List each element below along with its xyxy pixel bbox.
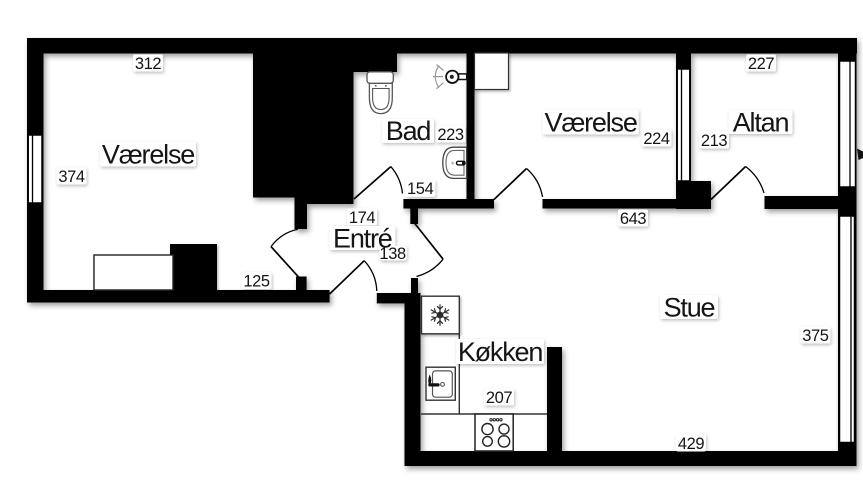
svg-text:Stue: Stue [664, 293, 715, 323]
svg-text:643: 643 [620, 210, 647, 228]
svg-text:224: 224 [643, 130, 670, 148]
svg-text:174: 174 [349, 209, 376, 227]
svg-text:223: 223 [437, 126, 464, 144]
svg-text:Køkken: Køkken [458, 337, 543, 367]
svg-text:Værelse: Værelse [102, 140, 194, 170]
svg-text:374: 374 [58, 168, 85, 186]
svg-text:138: 138 [379, 245, 406, 263]
svg-text:Værelse: Værelse [545, 108, 637, 138]
svg-text:154: 154 [407, 180, 434, 198]
svg-text:312: 312 [135, 55, 162, 73]
svg-text:375: 375 [802, 327, 829, 345]
svg-text:213: 213 [701, 132, 728, 150]
svg-text:125: 125 [243, 273, 270, 291]
svg-text:227: 227 [748, 55, 775, 73]
svg-text:Bad: Bad [386, 116, 431, 146]
svg-text:Altan: Altan [733, 108, 789, 138]
svg-text:207: 207 [486, 389, 513, 407]
svg-text:429: 429 [678, 435, 705, 453]
